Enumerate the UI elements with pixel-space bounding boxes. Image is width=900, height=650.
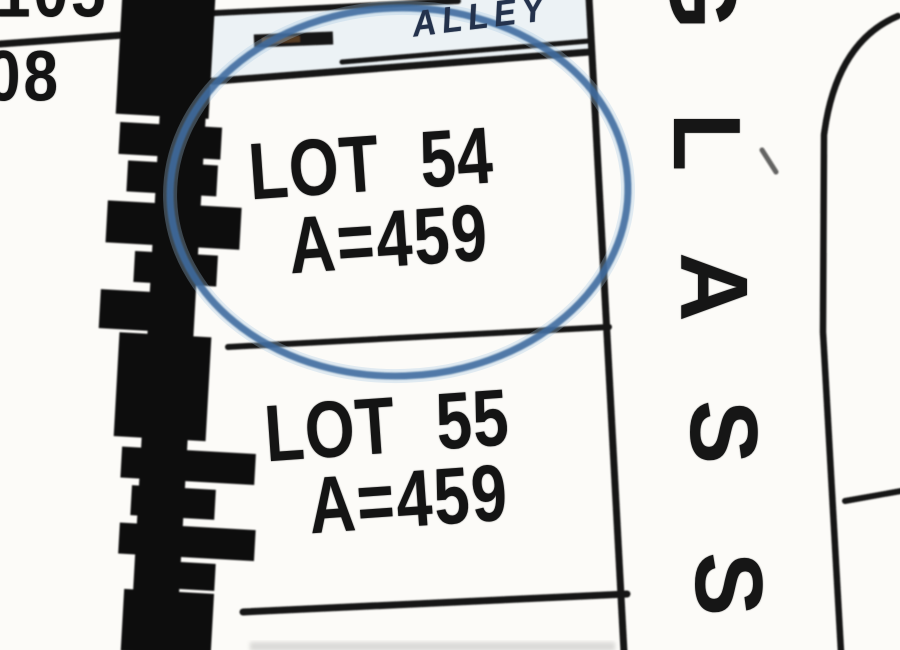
railroad-boundary xyxy=(81,0,285,650)
corner-number-bottom: 08 xyxy=(0,42,61,113)
corner-number-top: 105 xyxy=(0,0,108,29)
street-letter-l: L xyxy=(656,92,756,192)
plat-map: 105 08 ALLEY LOT 54 A=459 LOT 55 A=459 G… xyxy=(0,0,900,650)
street-letter-g: G xyxy=(652,0,752,42)
lot55-bottom-line xyxy=(243,594,627,612)
street-east-block-outline xyxy=(823,16,898,650)
street-east-lot-line xyxy=(845,491,900,501)
bottom-edge-smudge xyxy=(250,642,615,650)
street-letter-s2: S xyxy=(678,534,778,634)
ink-speck xyxy=(762,150,776,172)
lot54-area: A=459 xyxy=(286,192,491,286)
street-letter-a: A xyxy=(663,237,763,337)
street-letter-s1: S xyxy=(673,382,773,482)
lot55-area: A=459 xyxy=(306,452,511,546)
